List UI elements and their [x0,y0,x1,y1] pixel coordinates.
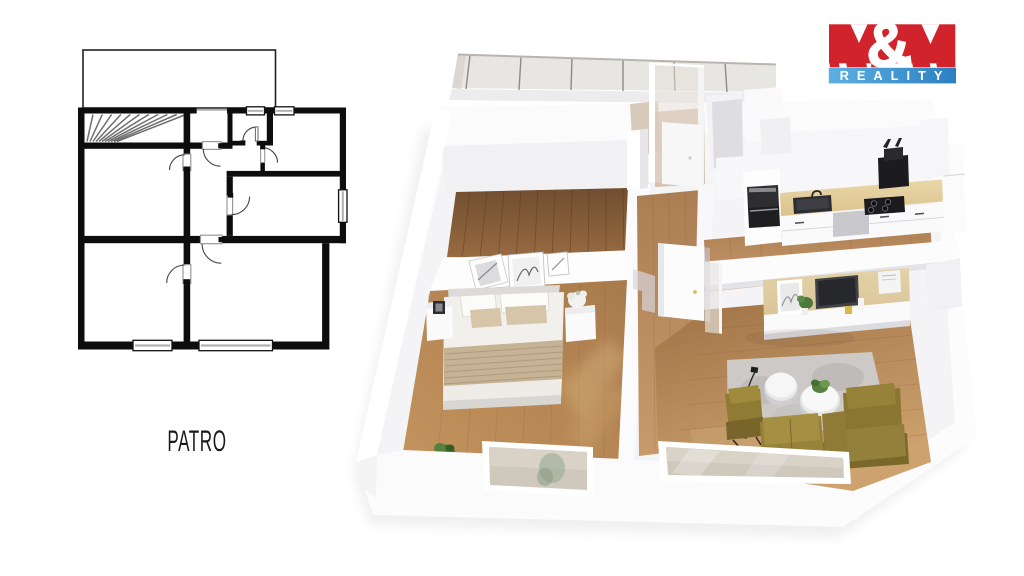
svg-text:REALITY: REALITY [840,68,951,83]
svg-text:PATRO: PATRO [167,425,226,458]
